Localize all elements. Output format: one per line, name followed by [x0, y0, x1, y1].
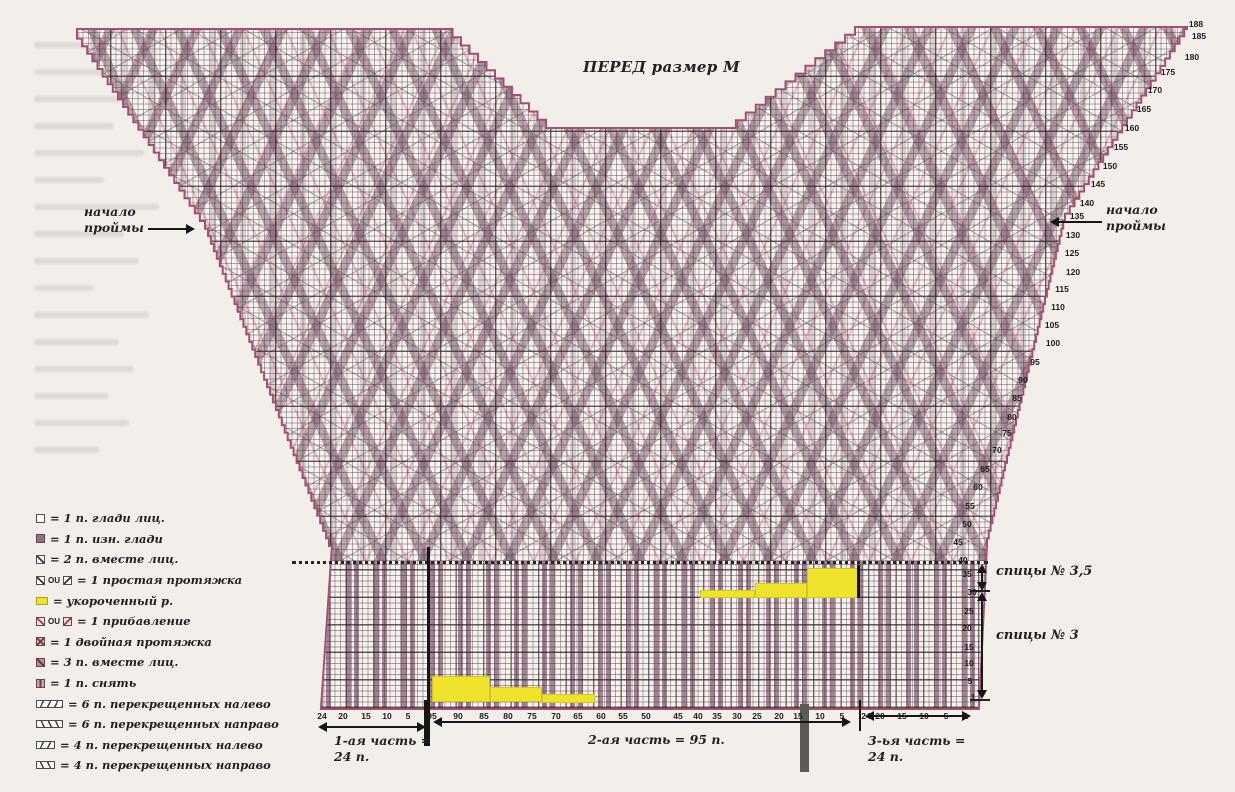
row-number: 10: [964, 658, 973, 668]
stitch-number: 1: [964, 711, 969, 721]
legend-item: = 4 п. перекрещенных направо: [36, 755, 279, 776]
legend-item-label: = 2 п. вместе лиц.: [50, 552, 178, 566]
row-number: 15: [964, 642, 973, 652]
row-number: 188: [1189, 19, 1203, 29]
legend-item-label: = 1 двойная протяжка: [50, 635, 212, 649]
row-number: 115: [1055, 284, 1069, 294]
cable6-left-symbol: [36, 700, 63, 708]
arrow-right-icon: [417, 722, 426, 732]
legend-item-symbols: [36, 741, 55, 749]
legend-item-symbols: [36, 534, 45, 543]
row-number: 165: [1137, 104, 1151, 114]
row-number: 1: [971, 692, 976, 702]
legend-item-symbols: [36, 637, 45, 646]
stitch-number: 60: [596, 711, 605, 721]
legend-item-symbols: [36, 700, 63, 708]
sq-slash-symbol: [36, 555, 45, 564]
legend-item-symbols: [36, 679, 45, 688]
page-title: ПЕРЕД размер М: [583, 58, 740, 77]
stitch-number: 30: [732, 711, 741, 721]
stitch-number: 10: [919, 711, 928, 721]
part2-part3-separator-line: [857, 565, 860, 598]
legend-item: = 6 п. перекрещенных направо: [36, 714, 279, 735]
legend-item: = укороченный р.: [36, 590, 279, 611]
short-row-highlight-left: [432, 676, 490, 702]
knitting-chart-page: ПЕРЕД размер М начало проймы начало прой…: [0, 0, 1235, 792]
sq-yellow-symbol: [36, 597, 48, 605]
row-number: 20: [962, 623, 971, 633]
row-number: 155: [1114, 142, 1128, 152]
sq-empty-symbol: [36, 514, 45, 523]
legend-item-label: = 1 п. снять: [50, 676, 136, 690]
legend-item: = 1 п. изн. глади: [36, 529, 279, 550]
row-number: 35: [962, 569, 971, 579]
needles-35-label: спицы № 3,5: [996, 564, 1092, 580]
row-number: 130: [1066, 230, 1080, 240]
part2-width-arrow: [441, 721, 845, 723]
armhole-arrow-left: [148, 228, 188, 230]
stitch-number: 5: [944, 711, 949, 721]
part3-label: 3-ья часть = 24 п.: [868, 733, 965, 764]
ribbing-area: [318, 561, 990, 708]
legend-item-label: = 4 п. перекрещенных налево: [60, 738, 263, 752]
row-number: 110: [1051, 302, 1065, 312]
short-row-highlight-right: [807, 568, 858, 598]
legend-item: = 2 п. вместе лиц.: [36, 549, 279, 570]
row-number: 40: [958, 555, 967, 565]
stitch-number: 45: [673, 711, 682, 721]
legend-item: OU= 1 простая протяжка: [36, 570, 279, 591]
row-number: 80: [1007, 412, 1016, 422]
row-number: 95: [1030, 357, 1039, 367]
row-number: 60: [973, 482, 982, 492]
legend-item-symbols: [36, 720, 63, 728]
short-row-highlight-left: [490, 687, 542, 702]
stitch-number: 25: [752, 711, 761, 721]
row-number: 185: [1192, 31, 1206, 41]
cable4-right-symbol: [36, 761, 55, 769]
legend-item: = 6 п. перекрещенных налево: [36, 693, 279, 714]
legend-item-label: = 1 простая протяжка: [77, 573, 242, 587]
row-number: 45: [953, 537, 962, 547]
legend-item-label: = 3 п. вместе лиц.: [50, 655, 178, 669]
legend-item-label: = 1 прибавление: [77, 614, 191, 628]
legend-item-label: = 6 п. перекрещенных направо: [68, 717, 279, 731]
stitch-number: 20: [875, 711, 884, 721]
sq-fill-symbol: [36, 534, 45, 543]
sq-double-symbol: [36, 637, 45, 646]
row-number: 65: [980, 464, 989, 474]
stitch-number: 35: [712, 711, 721, 721]
stitch-number: 75: [527, 711, 536, 721]
legend: = 1 п. глади лиц.= 1 п. изн. глади= 2 п.…: [36, 508, 279, 776]
stitch-number: 15: [897, 711, 906, 721]
legend-item-symbols: [36, 658, 45, 667]
sq-slip-symbol: [36, 679, 45, 688]
stitch-number: 85: [479, 711, 488, 721]
row-number: 120: [1066, 267, 1080, 277]
legend-item: = 1 п. снять: [36, 673, 279, 694]
row-number: 180: [1185, 52, 1199, 62]
stitch-number: 24: [317, 711, 326, 721]
arrow-down-icon: [977, 690, 987, 699]
row-number: 25: [964, 606, 973, 616]
row-number: 85: [1012, 393, 1021, 403]
legend-item-label: = 4 п. перекрещенных направо: [60, 758, 271, 772]
legend-item-symbols: [36, 761, 55, 769]
stitch-number: 50: [641, 711, 650, 721]
stitch-number: 24: [861, 711, 870, 721]
legend-item-label: = 1 п. изн. глади: [50, 532, 163, 546]
legend-or-text: OU: [48, 617, 60, 626]
stitch-number: 80: [503, 711, 512, 721]
needle-change-dotted-line: [292, 561, 988, 564]
row-number: 50: [962, 519, 971, 529]
stitch-number: 65: [573, 711, 582, 721]
short-row-highlight-right: [755, 583, 807, 598]
needles-3-range-arrow: [981, 596, 983, 694]
row-number: 125: [1065, 248, 1079, 258]
stitch-number: 20: [774, 711, 783, 721]
row-number: 55: [965, 501, 974, 511]
stitch-number: 95: [427, 711, 436, 721]
part2-label: 2-ая часть = 95 п.: [588, 732, 725, 748]
row-number: 145: [1091, 179, 1105, 189]
sq-slash-red-symbol: [36, 617, 45, 626]
legend-item: OU= 1 прибавление: [36, 611, 279, 632]
row-number: 30: [967, 587, 976, 597]
sq-three-symbol: [36, 658, 45, 667]
sq-backslash-red-symbol: [63, 617, 72, 626]
part1-width-arrow: [326, 726, 420, 728]
stitch-number: 10: [815, 711, 824, 721]
sq-backslash-symbol: [63, 576, 72, 585]
row-number: 160: [1125, 123, 1139, 133]
row-number: 175: [1161, 67, 1175, 77]
row-number: 5: [968, 676, 973, 686]
arrow-right-icon: [186, 224, 195, 234]
part1-label: 1-ая часть = 24 п.: [334, 733, 431, 764]
short-row-highlight-right: [700, 590, 755, 598]
legend-item-symbols: [36, 555, 45, 564]
legend-item-label: = укороченный р.: [53, 594, 173, 608]
stitch-number: 15: [793, 711, 802, 721]
legend-item: = 1 двойная протяжка: [36, 632, 279, 653]
row-number: 135: [1070, 211, 1084, 221]
short-row-highlight-left: [542, 694, 595, 703]
row-number: 150: [1103, 161, 1117, 171]
row-number: 70: [992, 445, 1001, 455]
legend-item-symbols: OU: [36, 617, 72, 626]
stitch-number: 15: [361, 711, 370, 721]
stitch-number: 40: [693, 711, 702, 721]
row-number: 170: [1148, 85, 1162, 95]
legend-item-symbols: OU: [36, 576, 72, 585]
legend-item-label: = 1 п. глади лиц.: [50, 511, 165, 525]
legend-or-text: OU: [48, 576, 60, 585]
needles-3-label: спицы № 3: [996, 628, 1079, 644]
row-number: 105: [1045, 320, 1059, 330]
legend-item: = 4 п. перекрещенных налево: [36, 735, 279, 756]
legend-item-label: = 6 п. перекрещенных налево: [68, 697, 271, 711]
armhole-start-label-left: начало проймы: [84, 204, 144, 235]
legend-item: = 3 п. вместе лиц.: [36, 652, 279, 673]
armhole-start-label-right: начало проймы: [1106, 202, 1166, 233]
stitch-number: 70: [551, 711, 560, 721]
stitch-number: 10: [382, 711, 391, 721]
legend-item-symbols: [36, 597, 48, 605]
row-number: 90: [1018, 375, 1027, 385]
sq-slash-symbol: [36, 576, 45, 585]
row-number: 75: [1002, 428, 1011, 438]
cable4-left-symbol: [36, 741, 55, 749]
stitch-number: 90: [453, 711, 462, 721]
stitch-number: 5: [840, 711, 845, 721]
stitch-number: 55: [618, 711, 627, 721]
legend-item-symbols: [36, 514, 45, 523]
legend-item: = 1 п. глади лиц.: [36, 508, 279, 529]
row-number: 140: [1080, 198, 1094, 208]
armhole-arrow-right: [1058, 221, 1102, 223]
stitch-number: 5: [406, 711, 411, 721]
part1-part2-separator-line: [427, 547, 430, 710]
stitch-number: 20: [338, 711, 347, 721]
row-number: 100: [1046, 338, 1060, 348]
cable6-right-symbol: [36, 720, 63, 728]
